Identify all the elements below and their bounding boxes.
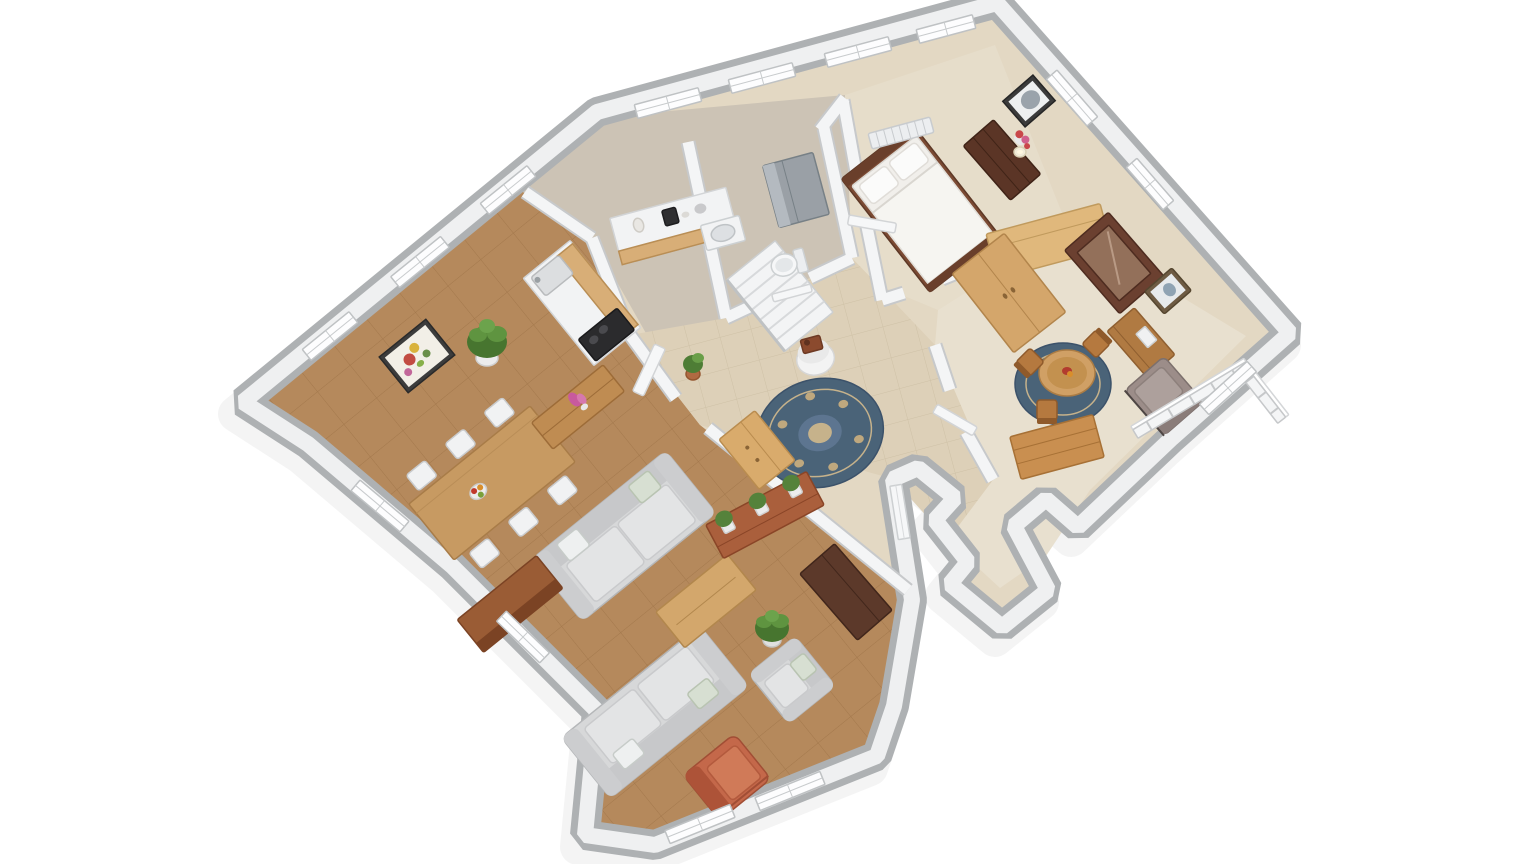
wall-lamp-part [1017, 150, 1023, 154]
partition-wall-segment [882, 293, 904, 300]
potted-plant-living-part [765, 610, 779, 622]
round-dining-table-part [1067, 371, 1073, 377]
floor-plan-viewport [0, 0, 1536, 864]
wall-lamp [1014, 147, 1026, 157]
wood-chair-3 [1037, 400, 1057, 424]
wood-chair-3-part [1037, 400, 1057, 420]
wood-chair-3-part [1037, 418, 1057, 424]
potted-cactus-hall-part [692, 353, 704, 363]
kitchen-wall-counter-part [662, 207, 680, 226]
floor-plan-3d-render [0, 0, 1536, 864]
potted-fiddle-plant-part [479, 319, 495, 333]
round-dining-table [1039, 350, 1095, 396]
